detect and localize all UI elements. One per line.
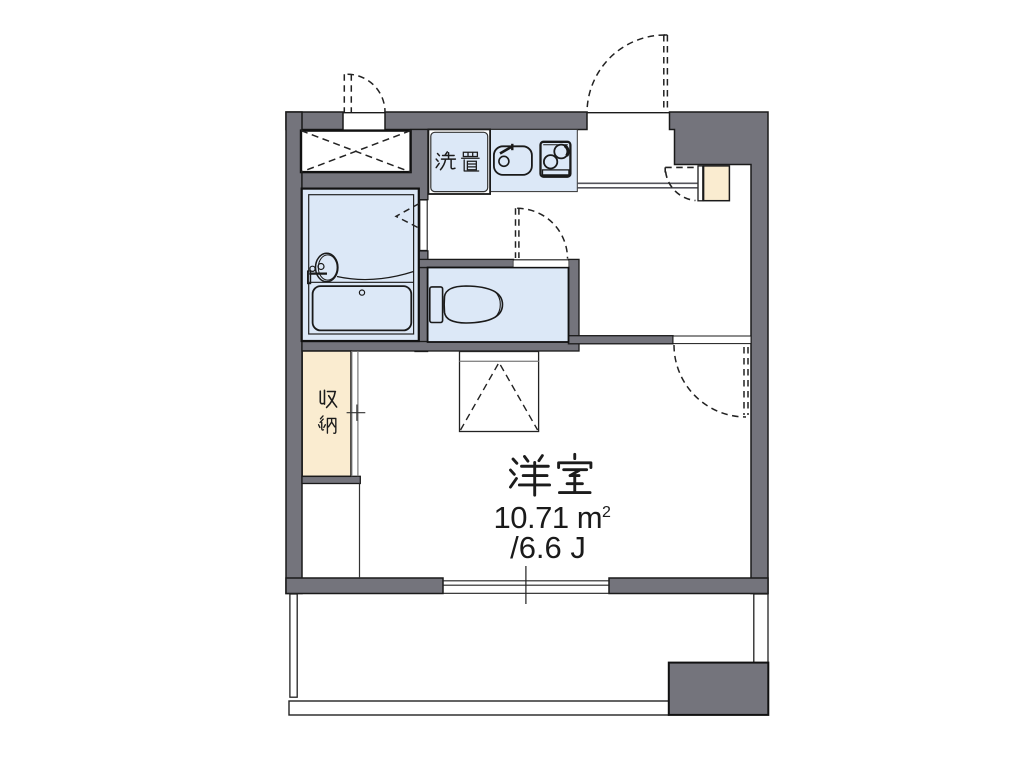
svg-text:/6.6 J: /6.6 J [510, 530, 586, 565]
